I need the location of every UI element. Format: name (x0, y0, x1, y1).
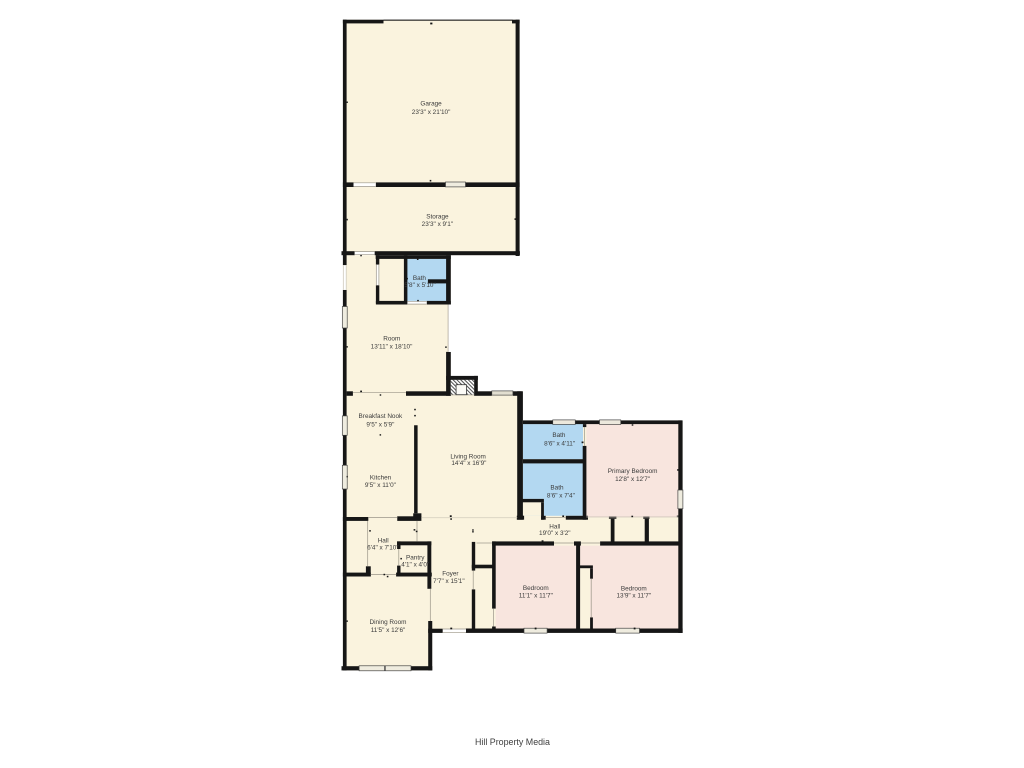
svg-text:Pantry: Pantry (406, 554, 425, 561)
svg-text:Foyer: Foyer (442, 571, 459, 578)
svg-text:7'7" x 15'1": 7'7" x 15'1" (433, 578, 465, 585)
svg-text:13'9" x 11'7": 13'9" x 11'7" (617, 593, 652, 600)
svg-text:8'6" x 4'11": 8'6" x 4'11" (544, 440, 575, 447)
svg-text:23'3" x 9'1": 23'3" x 9'1" (422, 221, 454, 228)
svg-text:8'6" x 7'4": 8'6" x 7'4" (547, 492, 575, 499)
svg-text:11'1" x 11'7": 11'1" x 11'7" (519, 593, 553, 600)
svg-text:14'4" x 16'9": 14'4" x 16'9" (451, 460, 486, 467)
svg-text:19'0" x 3'2": 19'0" x 3'2" (539, 530, 571, 537)
svg-text:9'5" x 5'9": 9'5" x 5'9" (366, 422, 394, 429)
svg-text:Hill Property Media: Hill Property Media (475, 737, 550, 747)
svg-text:Bath: Bath (413, 275, 427, 282)
svg-text:6'4" x 7'10": 6'4" x 7'10" (367, 545, 399, 552)
svg-text:11'5" x 12'6": 11'5" x 12'6" (371, 627, 406, 634)
svg-text:Primary Bedroom: Primary Bedroom (608, 468, 658, 475)
svg-text:Dining Room: Dining Room (370, 619, 407, 626)
svg-text:23'3" x 21'10": 23'3" x 21'10" (412, 109, 451, 116)
svg-text:13'11" x 18'10": 13'11" x 18'10" (371, 344, 413, 351)
svg-text:Room: Room (383, 336, 400, 343)
svg-text:Garage: Garage (420, 100, 442, 107)
svg-text:Bath: Bath (552, 432, 566, 439)
svg-text:Hall: Hall (378, 538, 389, 545)
svg-text:5'8" x 5'10": 5'8" x 5'10" (404, 282, 436, 289)
svg-text:Bath: Bath (550, 484, 564, 491)
svg-text:Storage: Storage (426, 214, 449, 221)
svg-text:Bedroom: Bedroom (523, 585, 549, 592)
svg-text:12'8" x 12'7": 12'8" x 12'7" (615, 476, 650, 483)
svg-text:Kitchen: Kitchen (370, 475, 392, 482)
svg-text:4'1" x 4'0": 4'1" x 4'0" (401, 561, 429, 568)
svg-text:9'5" x 11'0": 9'5" x 11'0" (365, 482, 396, 489)
svg-text:Bedroom: Bedroom (621, 585, 647, 592)
svg-text:Breakfast Nook: Breakfast Nook (359, 413, 403, 420)
